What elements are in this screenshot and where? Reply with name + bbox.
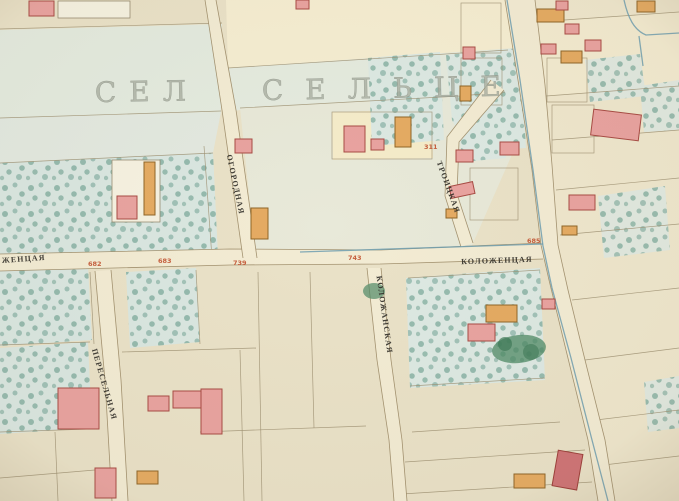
paper-vignette — [0, 0, 679, 501]
historical-map-view[interactable]: СЕЛ СЕЛЬЦЕ ОГОРОДНАЯ ТРОИЦКАЯ КОЛОЖЕНЦАЯ… — [0, 0, 679, 501]
map-canvas: СЕЛ СЕЛЬЦЕ ОГОРОДНАЯ ТРОИЦКАЯ КОЛОЖЕНЦАЯ… — [0, 0, 679, 501]
